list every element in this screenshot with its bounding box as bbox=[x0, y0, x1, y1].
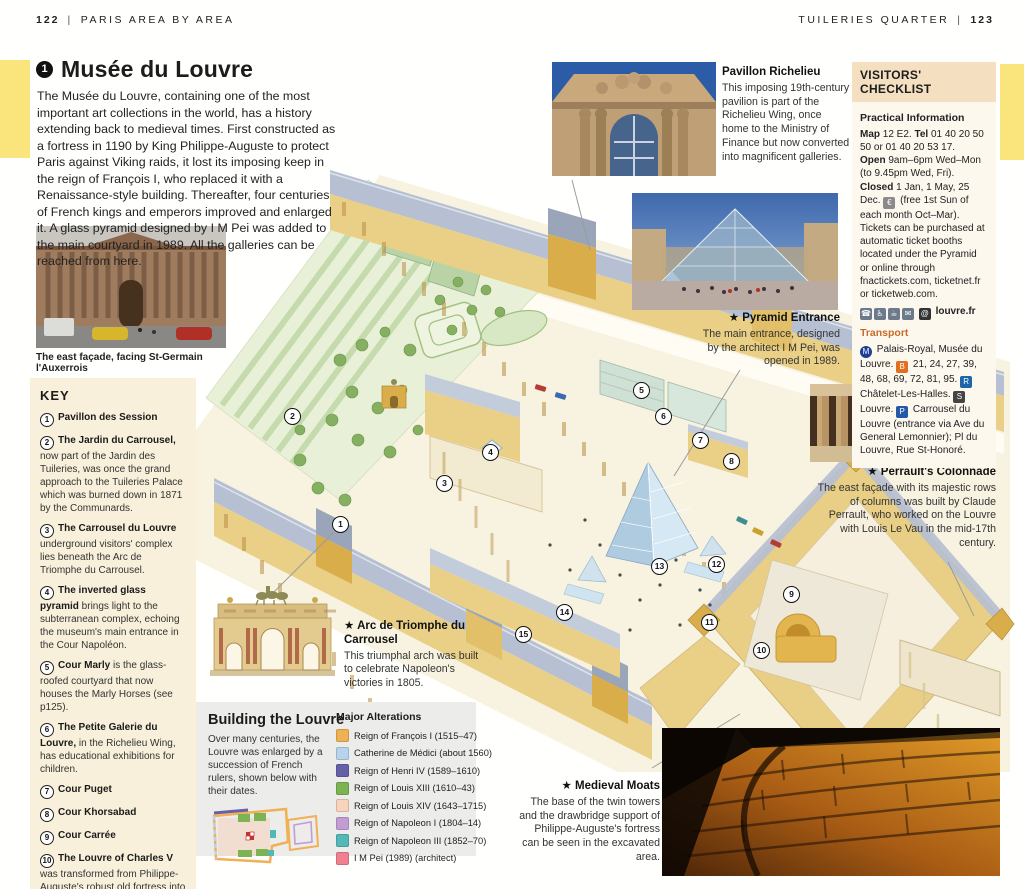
quadriga bbox=[256, 586, 288, 605]
legend-label: Reign of Napoleon III (1852–70) bbox=[354, 836, 486, 846]
map-marker-4: 4 bbox=[482, 444, 499, 461]
key-item-3: 3The Carrousel du Louvre underground vis… bbox=[40, 522, 186, 577]
callout-medieval-moats: ★ Medieval Moats The base of the twin to… bbox=[518, 780, 660, 865]
parking-icon: P bbox=[896, 406, 908, 418]
callout-title: ★ Medieval Moats bbox=[518, 780, 660, 794]
practical-info-heading: Practical Information bbox=[860, 112, 988, 126]
moats-photo-art bbox=[662, 728, 1000, 876]
key-item-10: 10The Louvre of Charles V was transforme… bbox=[40, 852, 186, 889]
key-number-badge: 2 bbox=[40, 436, 54, 450]
key-number-badge: 7 bbox=[40, 785, 54, 799]
legend-swatch bbox=[336, 834, 349, 847]
ticket-icon: € bbox=[883, 197, 895, 209]
callout-body: This triumphal arch was built to celebra… bbox=[344, 650, 482, 691]
legend-label: Reign of Napoleon I (1804–14) bbox=[354, 818, 481, 828]
map-marker-2: 2 bbox=[284, 408, 301, 425]
pyramid-photo bbox=[632, 193, 838, 310]
pei-pyramid-mark bbox=[246, 832, 254, 840]
key-number-badge: 10 bbox=[40, 854, 54, 868]
key-item-8: 8Cour Khorsabad bbox=[40, 806, 186, 822]
map-marker-1: 1 bbox=[332, 516, 349, 533]
legend-title: Major Alterations bbox=[336, 711, 492, 723]
callout-body: The base of the twin towers and the draw… bbox=[518, 796, 660, 865]
transport-info-text: M Palais-Royal, Musée du Louvre. B 21, 2… bbox=[860, 343, 988, 458]
map-marker-10: 10 bbox=[753, 642, 770, 659]
callout-title: ★ Pyramid Entrance bbox=[690, 312, 840, 326]
header-left: 122 | PARIS AREA BY AREA bbox=[36, 14, 235, 26]
legend-label: I M Pei (1989) (architect) bbox=[354, 853, 456, 863]
key-item-7: 7Cour Puget bbox=[40, 783, 186, 799]
legend-rows: Reign of François I (1515–47)Catherine d… bbox=[336, 729, 492, 865]
building-left-column: Over many centuries, the Louvre was enla… bbox=[208, 733, 326, 871]
visitors-checklist: VISITORS' CHECKLIST Practical Informatio… bbox=[852, 62, 996, 468]
practical-info-text: Map 12 E2. Tel 01 40 20 50 50 or 01 40 2… bbox=[860, 128, 988, 301]
key-item-1: 1Pavillon des Session bbox=[40, 411, 186, 427]
cafe-icon: ☕ bbox=[888, 308, 900, 320]
legend-swatch bbox=[336, 852, 349, 865]
louvre-growth-plan bbox=[208, 804, 323, 866]
building-the-louvre-box: Building the Louvre Over many centuries,… bbox=[196, 702, 476, 856]
callout-title: ★ Perrault's Colonnade bbox=[812, 466, 996, 480]
guidebook-spread: 122 | PARIS AREA BY AREA TUILERIES QUART… bbox=[0, 0, 1024, 889]
callout-title: ★ Arc de Triomphe du Carrousel bbox=[344, 620, 482, 648]
legend-label: Reign of Henri IV (1589–1610) bbox=[354, 766, 480, 776]
website-link[interactable]: louvre.fr bbox=[936, 306, 976, 317]
key-item-6: 6The Petite Galerie du Louvre, in the Ri… bbox=[40, 721, 186, 776]
header-divider: | bbox=[68, 14, 73, 26]
key-items: 1Pavillon des Session2The Jardin du Carr… bbox=[40, 411, 186, 889]
callout-title: Pavillon Richelieu bbox=[722, 66, 850, 80]
key-item-4: 4The inverted glass pyramid brings light… bbox=[40, 584, 186, 652]
wheelchair-icon: ♿ bbox=[874, 308, 886, 320]
article-title-row: 1 Musée du Louvre bbox=[36, 56, 253, 83]
legend-swatch bbox=[336, 799, 349, 812]
pyramid-photo-art bbox=[632, 193, 838, 310]
legend-swatch bbox=[336, 729, 349, 742]
legend-label: Catherine de Médici (about 1560) bbox=[354, 748, 492, 758]
callout-body: The main entrance, designed by the archi… bbox=[690, 328, 840, 369]
legend-swatch bbox=[336, 817, 349, 830]
key-number-badge: 4 bbox=[40, 586, 54, 600]
legend-row-5: Reign of Napoleon I (1804–14) bbox=[336, 817, 492, 830]
legend-row-4: Reign of Louis XIV (1643–1715) bbox=[336, 799, 492, 812]
map-marker-14: 14 bbox=[556, 604, 573, 621]
callout-pyramid-entrance: ★ Pyramid Entrance The main entrance, de… bbox=[690, 312, 840, 369]
map-marker-8: 8 bbox=[723, 453, 740, 470]
metro-icon: M bbox=[860, 346, 872, 358]
legend-swatch bbox=[336, 782, 349, 795]
map-marker-3: 3 bbox=[436, 475, 453, 492]
website-icon: @ bbox=[919, 308, 931, 320]
key-number-badge: 6 bbox=[40, 723, 54, 737]
pavillon-photo-art bbox=[552, 62, 716, 176]
medieval-moats-photo bbox=[662, 728, 1000, 876]
phone-icon: ☎ bbox=[860, 308, 872, 320]
building-body: Over many centuries, the Louvre was enla… bbox=[208, 733, 326, 798]
section-title-right: TUILERIES QUARTER bbox=[798, 14, 949, 26]
boat-icon: S bbox=[953, 391, 965, 403]
key-item-2: 2The Jardin du Carrousel, now part of th… bbox=[40, 434, 186, 515]
pavillon-richelieu-photo bbox=[552, 62, 716, 176]
map-marker-9: 9 bbox=[783, 586, 800, 603]
east-facade-caption: The east façade, facing St-Germain l'Aux… bbox=[36, 352, 236, 374]
key-box: KEY 1Pavillon des Session2The Jardin du … bbox=[30, 378, 196, 889]
visitors-checklist-body: Practical Information Map 12 E2. Tel 01 … bbox=[852, 102, 996, 468]
arc-de-triomphe-illustration bbox=[200, 574, 345, 702]
legend-label: Reign of Louis XIII (1610–43) bbox=[354, 783, 475, 793]
callout-arc-de-triomphe: ★ Arc de Triomphe du Carrousel This triu… bbox=[344, 620, 482, 691]
callout-body: The east façade with its majestic rows o… bbox=[812, 482, 996, 551]
page-title: Musée du Louvre bbox=[61, 56, 253, 83]
header-divider: | bbox=[957, 14, 962, 26]
website-row: ☎♿☕✉ @ louvre.fr bbox=[860, 305, 988, 320]
legend-row-0: Reign of François I (1515–47) bbox=[336, 729, 492, 742]
key-number-badge: 9 bbox=[40, 831, 54, 845]
section-title-left: PARIS AREA BY AREA bbox=[81, 14, 235, 26]
visitors-checklist-title: VISITORS' CHECKLIST bbox=[852, 62, 996, 102]
page-number-right: 123 bbox=[970, 14, 994, 26]
legend-row-6: Reign of Napoleon III (1852–70) bbox=[336, 834, 492, 847]
legend-row-3: Reign of Louis XIII (1610–43) bbox=[336, 782, 492, 795]
yellow-tab-right bbox=[1000, 64, 1024, 160]
legend-label: Reign of Louis XIV (1643–1715) bbox=[354, 801, 486, 811]
map-marker-13: 13 bbox=[651, 558, 668, 575]
map-marker-11: 11 bbox=[701, 614, 718, 631]
legend-column: Major Alterations Reign of François I (1… bbox=[336, 733, 492, 871]
intro-paragraph: The Musée du Louvre, containing one of t… bbox=[37, 88, 338, 270]
legend-row-2: Reign of Henri IV (1589–1610) bbox=[336, 764, 492, 777]
page-number-left: 122 bbox=[36, 14, 60, 26]
map-marker-6: 6 bbox=[655, 408, 672, 425]
key-item-9: 9Cour Carrée bbox=[40, 829, 186, 845]
facility-icons: ☎♿☕✉ bbox=[860, 306, 916, 317]
rer-icon: R bbox=[960, 376, 972, 388]
header-right: TUILERIES QUARTER | 123 bbox=[798, 14, 994, 26]
map-marker-7: 7 bbox=[692, 432, 709, 449]
map-marker-12: 12 bbox=[708, 556, 725, 573]
legend-row-1: Catherine de Médici (about 1560) bbox=[336, 747, 492, 760]
legend-row-7: I M Pei (1989) (architect) bbox=[336, 852, 492, 865]
map-marker-15: 15 bbox=[515, 626, 532, 643]
key-title: KEY bbox=[40, 388, 186, 403]
key-number-badge: 8 bbox=[40, 808, 54, 822]
mail-icon: ✉ bbox=[902, 308, 914, 320]
yellow-tab-left bbox=[0, 60, 30, 158]
legend-swatch bbox=[336, 764, 349, 777]
key-number-badge: 5 bbox=[40, 661, 54, 675]
transport-heading: Transport bbox=[860, 327, 988, 341]
key-number-badge: 3 bbox=[40, 524, 54, 538]
callout-perrault-colonnade: ★ Perrault's Colonnade The east façade w… bbox=[812, 466, 996, 551]
legend-swatch bbox=[336, 747, 349, 760]
legend-label: Reign of François I (1515–47) bbox=[354, 731, 477, 741]
key-item-5: 5Cour Marly is the glass-roofed courtyar… bbox=[40, 659, 186, 714]
callout-body: This imposing 19th-century pavilion is p… bbox=[722, 82, 850, 165]
bus-icon: B bbox=[896, 361, 908, 373]
key-number-badge: 1 bbox=[40, 413, 54, 427]
sight-number-badge: 1 bbox=[36, 61, 53, 78]
map-marker-5: 5 bbox=[633, 382, 650, 399]
callout-pavillon-richelieu: Pavillon Richelieu This imposing 19th-ce… bbox=[722, 66, 850, 164]
